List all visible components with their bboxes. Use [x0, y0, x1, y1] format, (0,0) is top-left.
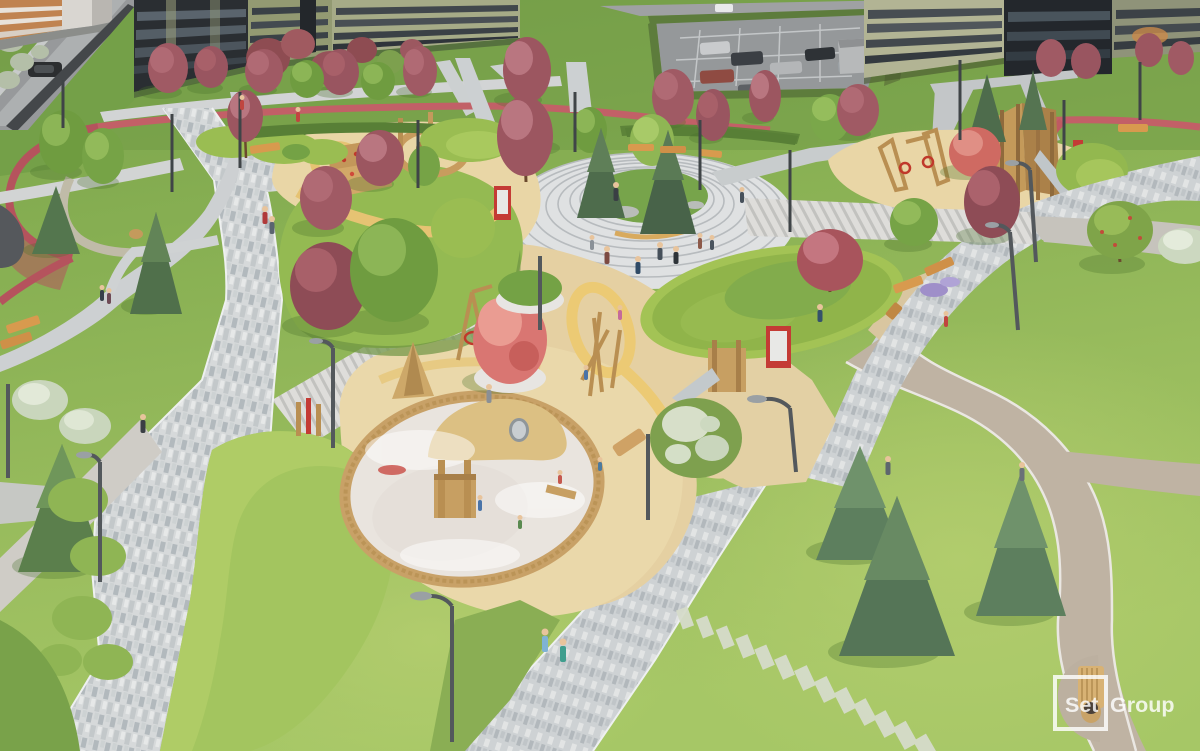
svg-text:Set: Set [1065, 693, 1098, 717]
svg-text:Group: Group [1110, 693, 1175, 717]
